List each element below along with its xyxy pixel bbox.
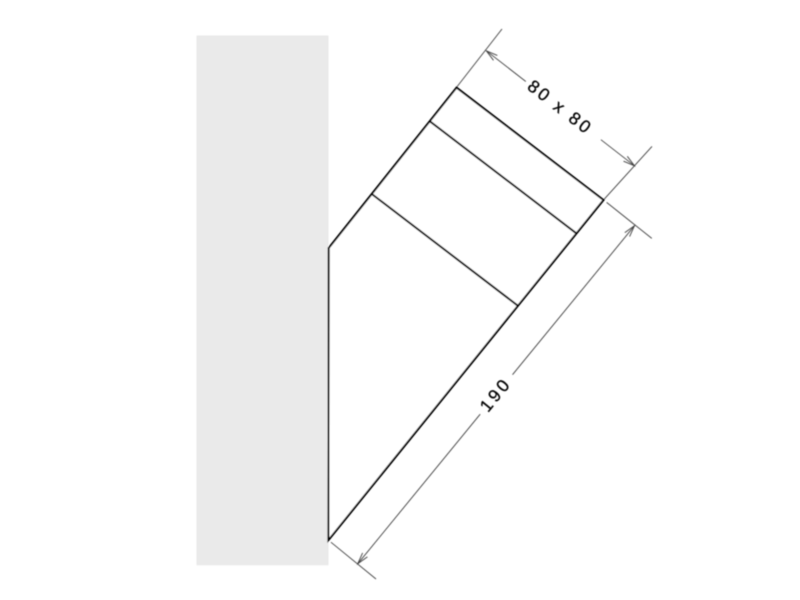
svg-text:190: 190 bbox=[476, 373, 516, 415]
svg-text:80 x 80: 80 x 80 bbox=[524, 76, 597, 139]
